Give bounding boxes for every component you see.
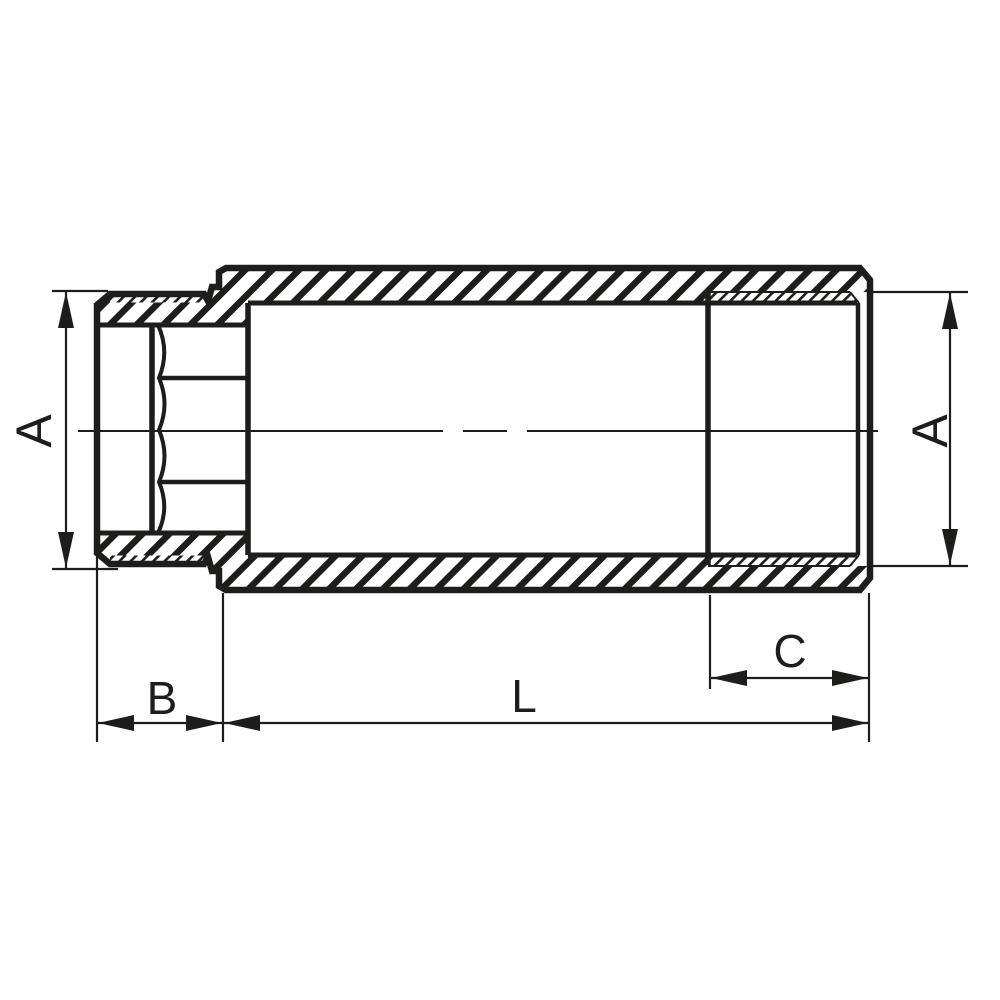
arrowhead-left — [224, 715, 260, 731]
arrowhead-left — [711, 670, 747, 686]
left-thread-runout-curve — [158, 325, 165, 533]
section-hatching — [97, 268, 870, 590]
arrowhead-up — [942, 293, 958, 329]
dimension-l: L — [224, 593, 869, 742]
label-c: C — [773, 625, 806, 677]
arrowhead-right — [832, 715, 868, 731]
arrowhead-left — [98, 715, 134, 731]
arrowhead-down — [58, 532, 74, 568]
arrowhead-up — [58, 292, 74, 328]
arrowhead-right — [186, 715, 222, 731]
label-l: L — [511, 670, 537, 722]
drawing-canvas: A A B — [0, 0, 1000, 1000]
label-a-left: A — [6, 414, 62, 448]
label-a-right: A — [902, 414, 958, 448]
arrowhead-down — [942, 529, 958, 565]
dimension-b: B — [97, 556, 223, 742]
arrowhead-right — [832, 670, 868, 686]
dimension-a-right: A — [873, 292, 968, 566]
label-b: B — [147, 672, 178, 724]
pipe-extension-fitting-drawing: A A B — [0, 0, 1000, 1000]
dimension-c: C — [710, 595, 868, 689]
